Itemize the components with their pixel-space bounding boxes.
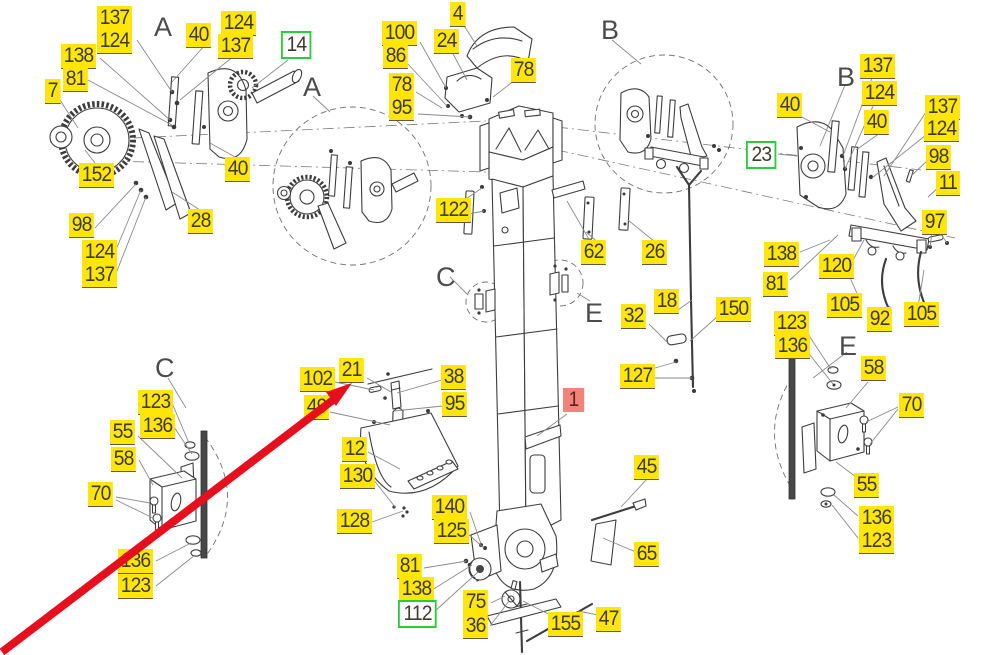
part-label-124[interactable]: 124: [97, 29, 132, 54]
part-label-137[interactable]: 137: [218, 34, 253, 59]
section-c-left-assembly: [150, 431, 207, 558]
part-label-124[interactable]: 124: [924, 117, 959, 142]
part-label-138[interactable]: 138: [764, 242, 799, 267]
part-label-78[interactable]: 78: [511, 58, 536, 83]
part-label-58[interactable]: 58: [861, 356, 886, 381]
part-label-136[interactable]: 136: [859, 506, 894, 531]
part-label-4[interactable]: 4: [450, 2, 465, 27]
part-label-49[interactable]: 49: [304, 395, 329, 420]
part-label-18[interactable]: 18: [654, 289, 679, 314]
central-boom-column: [464, 106, 562, 608]
part-label-62[interactable]: 62: [581, 240, 606, 265]
part-label-36[interactable]: 36: [463, 614, 488, 639]
part-label-7[interactable]: 7: [45, 79, 60, 104]
part-label-81[interactable]: 81: [397, 554, 422, 579]
part-label-75[interactable]: 75: [463, 590, 488, 615]
part-label-123[interactable]: 123: [774, 311, 809, 336]
part-label-130[interactable]: 130: [340, 464, 375, 489]
part-label-138[interactable]: 138: [399, 577, 434, 602]
side-plates: [552, 181, 630, 239]
part-label-150[interactable]: 150: [716, 297, 751, 322]
part-label-95[interactable]: 95: [389, 96, 414, 121]
part-label-140[interactable]: 140: [432, 495, 467, 520]
part-label-26[interactable]: 26: [642, 240, 667, 265]
part-label-11[interactable]: 11: [936, 171, 960, 196]
part-label-120[interactable]: 120: [819, 254, 854, 279]
part-label-40[interactable]: 40: [864, 110, 889, 135]
part-label-136[interactable]: 136: [775, 334, 810, 359]
part-label-14[interactable]: 14: [281, 31, 312, 59]
part-label-38[interactable]: 38: [441, 365, 466, 390]
part-label-40[interactable]: 40: [186, 23, 211, 48]
part-label-98[interactable]: 98: [69, 213, 94, 238]
part-label-112[interactable]: 112: [398, 600, 437, 628]
detail-c-small: [475, 288, 495, 314]
part-label-40[interactable]: 40: [777, 93, 802, 118]
part-label-97[interactable]: 97: [922, 210, 947, 235]
part-label-70[interactable]: 70: [88, 482, 113, 507]
part-label-32[interactable]: 32: [621, 304, 646, 329]
part-label-95[interactable]: 95: [442, 392, 467, 417]
part-label-123[interactable]: 123: [859, 529, 894, 554]
part-label-21[interactable]: 21: [339, 358, 364, 383]
part-label-24[interactable]: 24: [434, 29, 459, 54]
support-rod-assembly: [666, 167, 701, 393]
part-label-102[interactable]: 102: [300, 367, 335, 392]
parts-diagram: 1371241388174012413714152981241372840100…: [0, 0, 996, 655]
part-label-124[interactable]: 124: [82, 240, 117, 265]
part-label-124[interactable]: 124: [221, 11, 256, 36]
part-label-55[interactable]: 55: [110, 420, 135, 445]
part-label-138[interactable]: 138: [61, 44, 96, 69]
part-label-124[interactable]: 124: [862, 81, 897, 106]
part-label-125[interactable]: 125: [434, 519, 469, 544]
part-label-136[interactable]: 136: [140, 414, 175, 439]
part-label-137[interactable]: 137: [82, 263, 117, 288]
part-label-123[interactable]: 123: [118, 574, 153, 599]
part-label-122[interactable]: 122: [436, 198, 471, 223]
part-label-128[interactable]: 128: [337, 509, 372, 534]
part-label-137[interactable]: 137: [97, 6, 132, 31]
part-label-78[interactable]: 78: [389, 73, 414, 98]
part-label-81[interactable]: 81: [763, 272, 788, 297]
part-label-1[interactable]: 1: [563, 388, 584, 412]
part-label-81[interactable]: 81: [63, 67, 88, 92]
part-label-137[interactable]: 137: [860, 54, 895, 79]
part-label-47[interactable]: 47: [596, 607, 621, 632]
part-label-136[interactable]: 136: [118, 549, 153, 574]
part-label-12[interactable]: 12: [342, 437, 367, 462]
part-label-155[interactable]: 155: [548, 612, 583, 637]
part-label-152[interactable]: 152: [79, 163, 114, 188]
part-label-123[interactable]: 123: [138, 390, 173, 415]
part-label-98[interactable]: 98: [926, 145, 951, 170]
part-label-92[interactable]: 92: [867, 307, 892, 332]
part-label-58[interactable]: 58: [111, 447, 136, 472]
part-label-105[interactable]: 105: [827, 293, 862, 318]
part-label-105[interactable]: 105: [904, 302, 939, 327]
part-label-65[interactable]: 65: [634, 542, 659, 567]
part-label-28[interactable]: 28: [188, 209, 213, 234]
part-label-70[interactable]: 70: [899, 393, 924, 418]
part-label-100[interactable]: 100: [382, 21, 417, 46]
detail-a-assembly: [278, 149, 419, 249]
part-label-23[interactable]: 23: [746, 141, 777, 169]
part-label-45[interactable]: 45: [634, 455, 659, 480]
part-label-40[interactable]: 40: [225, 157, 250, 182]
detail-b-assembly: [620, 89, 721, 173]
part-label-86[interactable]: 86: [383, 44, 408, 69]
part-label-55[interactable]: 55: [854, 473, 879, 498]
part-label-127[interactable]: 127: [620, 364, 655, 389]
